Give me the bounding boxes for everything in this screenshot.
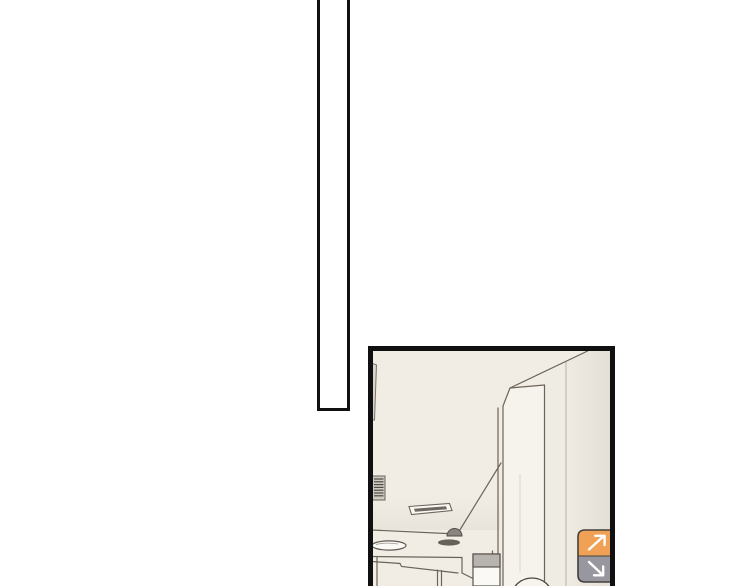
dome-shadow <box>438 539 460 545</box>
wall-corner-face <box>545 361 567 586</box>
pillar-front <box>503 385 545 586</box>
scroll-up-button[interactable] <box>578 530 614 556</box>
scroll-down-button[interactable] <box>578 556 614 582</box>
oval-fixture <box>372 541 406 550</box>
scroll-button-group <box>578 530 614 582</box>
vent-grille <box>373 476 386 500</box>
comic-panel-empty <box>317 0 350 411</box>
comic-panel-interior <box>368 346 615 586</box>
soffit-beam <box>372 541 406 550</box>
box-unit <box>473 554 500 586</box>
